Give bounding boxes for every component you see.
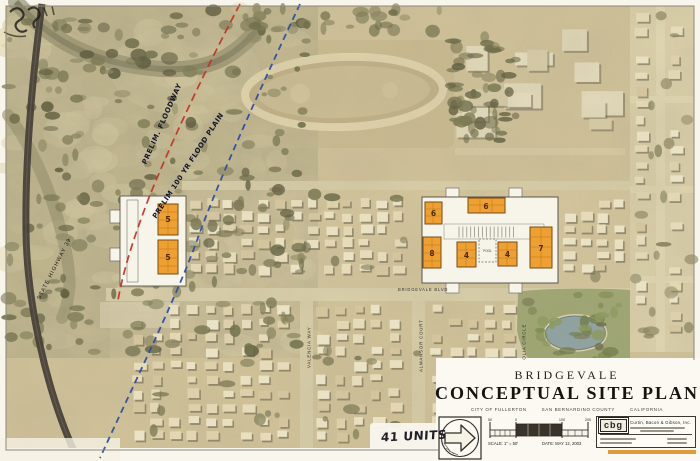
location-county: SAN BERNARDINO COUNTY [542, 407, 615, 412]
lot-building: 8 [423, 237, 441, 268]
title-block-row: 50 0 100 200 SCALE: 1" = 50' DATE: MAY 1… [438, 416, 696, 460]
lot-building: 4 [457, 242, 476, 267]
unit-count-note: 41 UNITS [381, 428, 448, 445]
job-number-strip [608, 450, 696, 454]
firm-logo: cbg [600, 419, 627, 432]
lot-number: 5 [165, 215, 171, 224]
scale-tick: 100 [559, 418, 565, 422]
street-label-2: ALMANSOR COURT [419, 319, 424, 372]
pool-label: POOL [483, 249, 492, 253]
site-plan-left-cluster: 5 5 [110, 196, 186, 286]
lot-number: 7 [538, 244, 543, 253]
firm-address-line [640, 430, 674, 432]
pool-area: POOL [479, 239, 496, 262]
lot-number: 6 [431, 209, 436, 218]
scale-tick: 50 [488, 418, 492, 422]
boulevard-label: BRIDGEVALE BLVD [398, 287, 448, 292]
engineer-stamp-box: cbg Curtin, Bacon & Gibson, Inc. [596, 416, 696, 448]
scale-tick: 0 [515, 418, 517, 422]
firm-address-line [630, 427, 685, 429]
location-city: CITY OF FULLERTON [471, 407, 527, 412]
scale-bar: 50 0 100 200 SCALE: 1" = 50' DATE: MAY 1… [486, 416, 592, 448]
scale-tick: 200 [585, 418, 591, 422]
lot-number: 6 [483, 202, 488, 211]
project-name: BRIDGEVALE [514, 368, 619, 383]
lot-building: 6 [468, 198, 505, 213]
title-block: BRIDGEVALE CONCEPTUAL SITE PLAN CITY OF … [438, 360, 696, 460]
site-plan-right-cluster: 6 6 8 4 POOL 4 7 [422, 188, 558, 293]
lot-number: 8 [429, 249, 434, 258]
scanned-site-plan-sheet: 5 5 6 6 8 [0, 0, 700, 461]
sheet-title: CONCEPTUAL SITE PLAN [435, 383, 699, 404]
lot-number: 5 [165, 253, 171, 262]
lot-number: 4 [505, 250, 510, 259]
lot-building: 5 [158, 240, 178, 274]
firm-name: Curtin, Bacon & Gibson, Inc. [630, 419, 692, 425]
street-label-1: VALENCIA WAY [307, 327, 312, 368]
firm-footer [600, 434, 692, 444]
location-line: CITY OF FULLERTON SAN BERNARDINO COUNTY … [471, 407, 663, 412]
scale-label: SCALE: 1" = 50' [488, 441, 518, 446]
lot-building: 4 [498, 242, 517, 266]
lot-building: 7 [530, 227, 552, 268]
lot-building: 6 [425, 202, 442, 224]
lot-number: 4 [464, 251, 469, 260]
firm-header: cbg Curtin, Bacon & Gibson, Inc. [600, 419, 692, 432]
location-state: CALIFORNIA [630, 407, 663, 412]
date-label: DATE: MAY 12, 2003 [542, 441, 582, 446]
